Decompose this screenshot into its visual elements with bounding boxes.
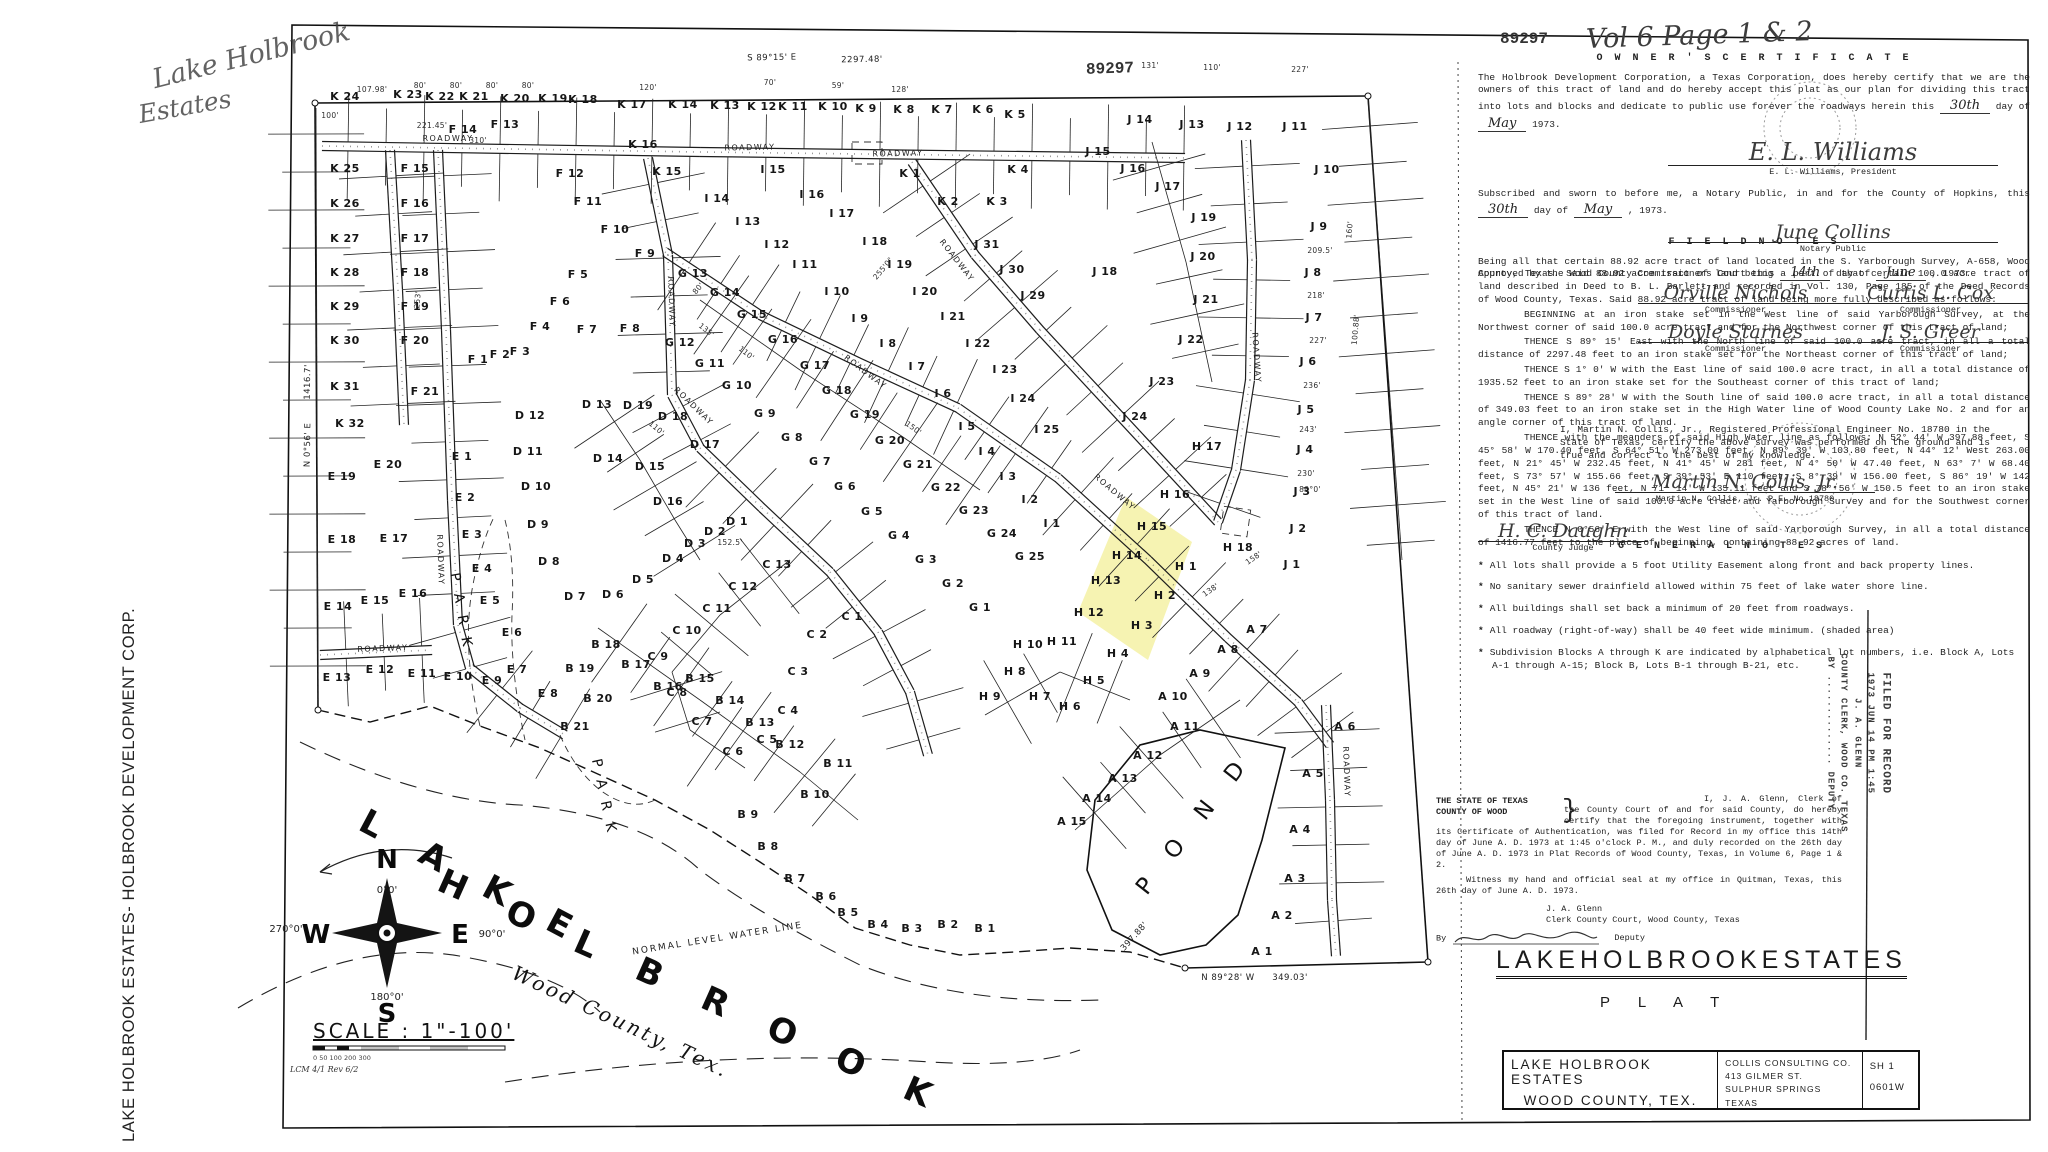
lot-label: G 18 [822,384,852,397]
lot-label: K 17 [617,98,647,111]
document-number-stamp-2: 89297 [1500,30,1548,48]
lot-label: J 1 [1282,558,1300,571]
dimension-label: 230' [1297,469,1315,478]
lot-label: G 11 [695,357,725,370]
lot-label: I 4 [978,445,995,458]
lot-label: F 7 [577,323,598,336]
lot-label: K 24 [330,90,360,103]
lot-label: C 3 [787,665,808,678]
lot-label: K 7 [931,103,953,116]
title-block-firm: COLLIS CONSULTING CO. 413 GILMER ST. SUL… [1718,1052,1863,1108]
general-note-item: *All buildings shall set back a minimum … [1492,603,2018,616]
lot-label: B 10 [800,788,830,801]
lot-label: A 6 [1334,720,1356,733]
compass-e: E [451,920,469,950]
lot-label: G 7 [809,455,831,468]
lot-label: J 22 [1177,333,1203,346]
lot-label: H 18 [1223,541,1253,554]
lot-label: C 13 [762,558,791,571]
lot-label: B 3 [901,922,922,935]
lot-label: B 1 [974,922,995,935]
lot-label: K 16 [628,138,658,151]
lot-label: A 11 [1170,720,1200,733]
lot-label: J 16 [1119,162,1145,175]
lot-label: C 11 [702,602,731,615]
lot-label: D 2 [704,525,726,538]
bottom-bearing: N 89°28' W [1201,973,1254,983]
engineer-signature-block: Martin N. Collis, Jr. Martin N. Collis, … [1615,470,1875,505]
lot-label: B 9 [737,808,758,821]
clerk-title: Clerk County Court, Wood County, Texas [1546,915,1842,926]
lot-label: E 2 [455,491,476,504]
lot-label: F 12 [556,167,585,180]
scanned-plat-page: { "page": { "side_label": "LAKE HOLBROOK… [0,0,2048,1152]
lot-label: K 18 [568,93,598,106]
lot-linework [268,94,1446,956]
compass-s-deg: 180°0' [370,992,403,1003]
lot-label: J 24 [1121,410,1147,423]
lot-label: J 10 [1313,163,1339,176]
lot-label: F 10 [601,223,630,236]
lot-label: B 15 [685,672,715,685]
dimension-label: 152.5' [717,538,742,547]
lot-label: K 21 [459,90,489,103]
lot-label: K 15 [652,165,682,178]
lot-label: K 1 [899,167,921,180]
lot-label: G 1 [969,601,991,614]
dimension-label: 80' [450,81,463,90]
field-notes-paragraph: THENCE S 1° 0' W with the East line of s… [1478,364,2030,390]
sheet-number: SH 1 [1870,1057,1911,1078]
lot-label: G 8 [781,431,803,444]
certificate-body: The Holbrook Development Corporation, a … [1478,72,2030,133]
engineer-signature: Martin N. Collis, Jr. [1652,471,1838,493]
lot-label: J 30 [998,263,1024,276]
lot-label: I 8 [879,337,896,350]
lot-label: H 7 [1029,690,1051,703]
lot-label: K 30 [330,334,360,347]
document-number-stamp: 89297 [1086,59,1135,79]
lot-label: B 16 [653,680,683,693]
general-notes: G E N E R A L N O T E S *All lots shall … [1478,540,2018,681]
general-note-item: *Subdivision Blocks A through K are indi… [1492,647,2018,673]
dimension-label: 209.5' [1307,246,1332,255]
lot-label: D 7 [564,590,586,603]
dimension-label: 110' [737,344,756,362]
lot-label: J 13 [1178,118,1204,131]
lot-label: H 2 [1154,589,1176,602]
general-notes-items: *All lots shall provide a 5 foot Utility… [1478,560,2018,673]
roadway-label: ROADWAY [435,534,446,585]
lot-label: I 1 [1043,517,1060,530]
dimension-label: 107.98' [357,85,387,94]
revision-note: LCM 4/1 Rev 6/2 [289,1065,358,1074]
dimension-label: 221.45' [417,121,447,130]
lot-label: B 13 [745,716,775,729]
dimension-label: 80' [486,81,499,90]
lot-label: K 11 [778,100,808,113]
lot-label: J 21 [1192,293,1218,306]
filed-stamp-line: FILED FOR RECORD [1877,653,1894,813]
lot-label: F 20 [401,334,430,347]
lot-label: B 18 [591,638,621,651]
lot-label: H 4 [1107,647,1129,660]
lot-label: G 25 [1015,550,1045,563]
lot-label: D 8 [538,555,560,568]
lot-label: G 13 [678,267,708,280]
lot-label: A 12 [1133,749,1163,762]
lot-label: E 1 [452,450,473,463]
scale-ticks: 0 50 100 200 300 [313,1054,371,1062]
lot-label: G 15 [737,308,767,321]
dimension-label: 80°0' [1299,485,1321,494]
dimension-label: 110' [1203,63,1221,72]
engineer-certification: I, Martin N. Collis, Jr., Registered Pro… [1560,424,1990,508]
lot-label: C 12 [728,580,757,593]
clerk-name: J. A. Glenn [1546,904,1842,915]
filed-for-record-stamp: FILED FOR RECORD1973 JUN 14 PM 1:45J. A.… [1823,653,1894,813]
lot-label: I 25 [1034,423,1059,436]
lot-label: J 29 [1019,289,1045,302]
lot-label: I 21 [940,310,965,323]
lot-label: C 4 [777,704,798,717]
lot-label: G 3 [915,553,937,566]
lot-label: G 17 [800,359,830,372]
lot-label: F 2 [490,348,511,361]
lot-label: K 13 [710,99,740,112]
lot-label: D 16 [653,495,683,508]
lot-label: I 15 [760,163,785,176]
lot-label: B 21 [560,720,590,733]
dimension-label: 253' [412,291,422,309]
lot-label: H 13 [1091,574,1121,587]
lot-label: C 2 [806,628,827,641]
field-notes-paragraph: Being all that certain 88.92 acre tract … [1478,256,2030,307]
lot-label: D 13 [582,398,612,411]
firm-street: 413 GILMER ST. [1725,1070,1855,1083]
engineer-signature-label: Martin N. Collis, Jr. P.E. No.18780 [1615,494,1875,505]
lot-label: I 18 [862,235,887,248]
lot-label: K 22 [425,90,455,103]
lot-label: H 16 [1160,488,1190,501]
lot-label: E 14 [324,600,353,613]
lot-label: E 11 [408,667,437,680]
roadway-label: ROADWAY [1250,332,1263,384]
panel-divider [1458,62,1462,1120]
lot-label: H 5 [1083,674,1105,687]
filing-witness: Witness my hand and official seal at my … [1436,875,1842,897]
west-distance: 1416.7' [303,364,314,400]
lot-label: H 14 [1112,549,1142,562]
sheet-title: LAKE HOLBROOK ESTATES [1496,946,1874,979]
lot-label: E 12 [366,663,395,676]
filing-county: COUNTY OF WOOD [1436,807,1564,818]
lot-label: F 1 [468,353,489,366]
lot-label: B 6 [815,890,836,903]
general-notes-heading: G E N E R A L N O T E S [1618,540,2018,554]
lot-label: D 6 [602,588,624,601]
bottom-distance: 349.03' [1272,973,1308,983]
lot-label: A 1 [1251,945,1273,958]
roadway-label: ROADWAY [422,134,473,143]
lot-label: D 14 [593,452,623,465]
dashed-square-marker [1220,506,1250,536]
lot-label: A 5 [1302,767,1324,780]
lot-label: A 15 [1057,815,1087,828]
lot-label: F 8 [620,322,641,335]
lot-label: F 21 [411,385,440,398]
lot-label: E 9 [482,674,503,687]
lot-label: A 2 [1271,909,1293,922]
lot-label: I 11 [792,258,817,271]
title-block-name-line2: WOOD COUNTY, TEX. [1511,1093,1710,1108]
president-signature-block: E. L. Williams E. L. Williams, President [1668,136,1998,178]
dimension-label: 236' [1303,381,1321,390]
title-word-lake: LAKE [1496,946,1580,979]
lot-label: I 14 [704,192,729,205]
dimension-label: 138' [1201,581,1221,598]
lot-label: B 4 [867,918,888,931]
lot-label: A 14 [1082,792,1112,805]
lot-label: K 10 [818,100,848,113]
dimension-label: 120' [639,83,657,92]
lot-label: F 6 [550,295,571,308]
lot-label: I 9 [851,312,868,325]
lot-label: K 26 [330,197,360,210]
roadway-label: ROADWAY [666,276,677,327]
lot-label: A 3 [1284,872,1306,885]
dimension-label: 59' [832,81,845,90]
lot-label: E 5 [480,594,501,607]
lot-label: B 7 [784,872,805,885]
lot-label: F 18 [401,266,430,279]
lot-label: C 10 [672,624,701,637]
lot-label: I 20 [912,285,937,298]
notary-day: 30th [1478,202,1528,218]
lot-label: D 17 [690,438,720,451]
lot-label: E 6 [502,626,523,639]
lot-label: G 9 [754,407,776,420]
lot-label: A 8 [1217,643,1239,656]
lot-label: J 19 [1190,211,1216,224]
lot-label: C 1 [841,610,862,623]
filed-stamp-line: 1973 JUN 14 PM 1:45 [1863,653,1877,813]
title-block-name: LAKE HOLBROOK ESTATES WOOD COUNTY, TEX. [1504,1052,1718,1108]
lot-label: E 15 [361,594,390,607]
corp-side-label: LAKE HOLBROOK ESTATES- HOLBROOK DEVELOPM… [120,502,139,1142]
lot-label: E 19 [328,470,357,483]
roadway-label: ROADWAY [1341,746,1352,797]
lot-label: J 4 [1295,443,1313,456]
lot-label: I 24 [1010,392,1035,405]
lot-label: J 8 [1303,266,1321,279]
lot-label: K 28 [330,266,360,279]
lot-label: D 1 [726,515,748,528]
lot-label: D 9 [527,518,549,531]
west-bearing: N 0°56' E [303,423,314,468]
lot-label: G 24 [987,527,1017,540]
lot-label: A 9 [1189,667,1211,680]
lot-label: I 17 [829,207,854,220]
lot-label: H 1 [1175,560,1197,573]
lot-label: J 2 [1288,522,1306,535]
lot-label: F 17 [401,232,430,245]
lot-label: E 18 [328,533,357,546]
title-block-name-line1: LAKE HOLBROOK ESTATES [1511,1057,1710,1087]
lot-label: I 3 [999,470,1016,483]
dimension-label: 160' [1344,221,1354,239]
lot-label: J 6 [1298,355,1316,368]
lot-label: I 7 [908,360,925,373]
lot-label: D 18 [658,410,688,423]
lot-label: D 3 [684,537,706,550]
lot-label: I 10 [824,285,849,298]
lot-label: D 11 [513,445,543,458]
lot-label: B 5 [837,906,858,919]
lot-label: K 14 [668,98,698,111]
dimension-label: 227' [1309,336,1327,345]
lot-label: J 5 [1296,403,1314,416]
lot-label: D 19 [623,399,653,412]
lot-label: C 7 [691,715,712,728]
lot-label: K 2 [937,195,959,208]
notary-body: Subscribed and sworn to before me, a Not… [1478,188,2030,218]
lot-label: H 3 [1131,619,1153,632]
lot-label: D 4 [662,552,684,565]
compass-n-deg: 0°0' [377,885,397,896]
lot-label: E 3 [462,528,483,541]
lot-label: I 6 [934,387,951,400]
lot-label: H 12 [1074,606,1104,619]
lot-label: D 10 [521,480,551,493]
general-note-item: *No sanitary sewer drainfield allowed wi… [1492,581,2018,594]
water-line-label: NORMAL LEVEL WATER LINE [632,921,804,958]
lot-label: G 4 [888,529,910,542]
lot-label: A 10 [1158,690,1188,703]
brace-glyph: } [1562,794,1578,828]
lot-label: B 19 [565,662,595,675]
lot-label: F 5 [568,268,589,281]
lot-label: J 15 [1084,145,1110,158]
lot-label: J 7 [1304,311,1322,324]
lot-label: B 17 [621,658,651,671]
lot-label: J 9 [1309,220,1327,233]
roadway-label: ROADWAY [724,143,775,153]
lot-label: D 12 [515,409,545,422]
scale-label: SCALE : 1"-100' [313,1019,514,1043]
lot-label: K 9 [855,102,877,115]
lot-label: F 15 [401,162,430,175]
top-distance: 2297.48' [841,55,883,66]
lot-label: I 13 [735,215,760,228]
title-block-sheet: SH 1 0601W [1863,1052,1918,1108]
general-note-item: *All roadway (right-of-way) shall be 40 … [1492,625,2018,638]
title-word-estates: ESTATES [1762,946,1907,979]
filing-certificate: THE STATE OF TEXAS } COUNTY OF WOOD I, J… [1436,796,1842,946]
roadway-label: ROADWAY [357,643,408,654]
engineer-body: I, Martin N. Collis, Jr., Registered Pro… [1560,424,1990,462]
compass-w: W [302,920,331,950]
lot-label: H 15 [1137,520,1167,533]
lot-label: K 12 [747,100,777,113]
clerk-block: J. A. Glenn Clerk County Court, Wood Cou… [1546,904,1842,926]
plat-subtitle: P L A T [1600,994,1731,1011]
lot-label: K 5 [1004,108,1026,121]
lot-label: G 23 [959,504,989,517]
lot-label: I 23 [992,363,1017,376]
roadway-label: ROADWAY [872,149,923,159]
certificate-day: 30th [1940,98,1990,114]
lot-label: B 14 [715,694,745,707]
lot-label: J 11 [1281,120,1307,133]
lot-label: I 12 [764,238,789,251]
lot-label: E 13 [323,671,352,684]
lot-label: G 19 [850,408,880,421]
firm-name: COLLIS CONSULTING CO. [1725,1057,1855,1070]
dimension-label: 80' [414,81,427,90]
lot-label: B 20 [583,692,613,705]
lot-label: G 5 [861,505,883,518]
lot-label: K 20 [500,92,530,105]
lot-label: G 10 [722,379,752,392]
lot-label: K 8 [893,103,915,116]
dimension-label: 227' [1291,65,1309,74]
lot-label: H 10 [1013,638,1043,651]
lot-label: B 8 [757,840,778,853]
lot-label: E 17 [380,532,409,545]
filed-stamp-line: J. A. GLENN [1850,653,1864,813]
lot-label: K 25 [330,162,360,175]
field-notes-heading: F I E L D N O T E S [1478,236,2030,250]
dimension-label: 80' [522,81,535,90]
lot-label: F 3 [510,345,531,358]
pond-label: P O N D [1131,748,1258,900]
dimension-label: 150' [904,419,924,437]
lot-label: K 27 [330,232,360,245]
notary-month: May [1574,202,1622,218]
filed-stamp-line: COUNTY CLERK, WOOD CO. TEXAS [1836,653,1850,813]
lot-label: G 22 [931,481,961,494]
deputy-line: By Deputy [1436,930,1842,946]
roadway-label: ROADWAY [1092,472,1137,512]
title-block: LAKE HOLBROOK ESTATES WOOD COUNTY, TEX. … [1502,1050,1920,1110]
lot-label: C 6 [722,745,743,758]
lot-label: I 5 [958,420,975,433]
lot-label: G 14 [710,286,740,299]
certificate-month: May [1478,116,1526,132]
lot-label: D 5 [632,573,654,586]
lot-label: J 12 [1226,120,1252,133]
lot-label: E 16 [399,587,428,600]
drawing-number: 0601W [1870,1078,1911,1099]
lot-label: J 17 [1154,180,1180,193]
lot-label: K 29 [330,300,360,313]
lot-label: A 4 [1289,823,1311,836]
lot-label: F 16 [401,197,430,210]
lot-label: H 8 [1004,665,1026,678]
lot-label: I 22 [965,337,990,350]
lot-label: H 17 [1192,440,1222,453]
deputy-signature-squiggle [1451,930,1601,946]
roadway-label: ROADWAY [938,238,977,284]
general-note-item: *All lots shall provide a 5 foot Utility… [1492,560,2018,573]
lot-label: F 11 [574,195,603,208]
firm-city: SULPHUR SPRINGS TEXAS [1725,1083,1855,1109]
compass-w-deg: 270°0' [269,924,302,935]
lot-label: F 9 [635,247,656,260]
lot-label: K 4 [1007,163,1029,176]
lot-label: E 7 [507,663,528,676]
